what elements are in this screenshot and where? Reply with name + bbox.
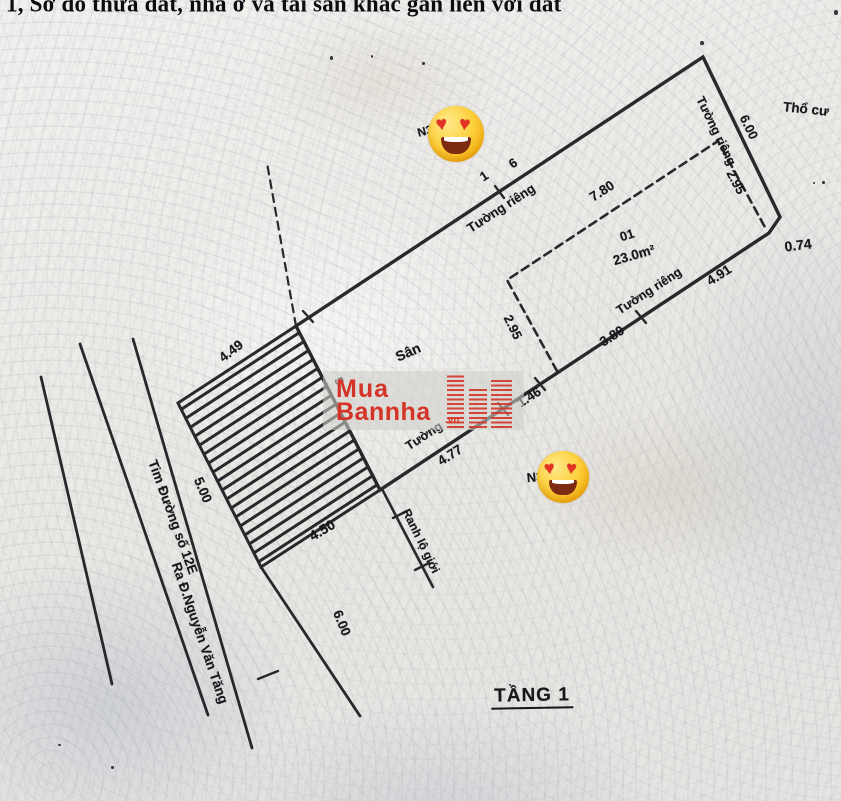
scanned-cadastral-sketch: Tường riêng 1 6 Tường riêng 6.00 Thổ cư … [0,0,841,801]
heart-eyes-emoji-sticker: ♥ ♥ [537,451,589,503]
watermark-line2: Bannha [336,400,431,425]
ink-speck [58,744,61,746]
ink-speck [330,56,333,60]
floor-label-text: TẦNG 1 [491,684,573,709]
watermark-logo-stripes [469,387,487,428]
ink-speck [822,181,825,184]
heart-eye-icon: ♥ [435,113,449,136]
heart-eyes-emoji-sticker: ♥ ♥ [428,106,484,162]
page-title: 1, Sơ đồ thửa đất, nhà ở và tài sản khác… [6,0,561,18]
ink-speck [371,55,373,58]
watermark-logo-stripes [491,378,512,428]
ink-speck [422,62,425,65]
road-edge-extension [261,567,360,716]
emoji-mouth [441,137,470,154]
floor-label: TẦNG 1 [491,684,573,707]
heart-eye-icon: ♥ [543,457,556,479]
road-line-1 [41,377,112,684]
ink-speck [700,41,704,45]
ink-speck [111,766,114,769]
ink-speck [813,182,815,184]
ink-speck [834,10,838,15]
heart-eye-icon: ♥ [458,113,472,136]
watermark-logo-stripes [447,374,464,428]
emoji-mouth [549,480,576,496]
heart-eye-icon: ♥ [565,457,578,479]
road-corridor-hatched-area [178,326,380,567]
watermark-banner: Mua Bannha .vn [323,371,524,430]
boundary-extension-dashed [267,163,296,326]
dim-notch: 0.74 [784,235,813,254]
